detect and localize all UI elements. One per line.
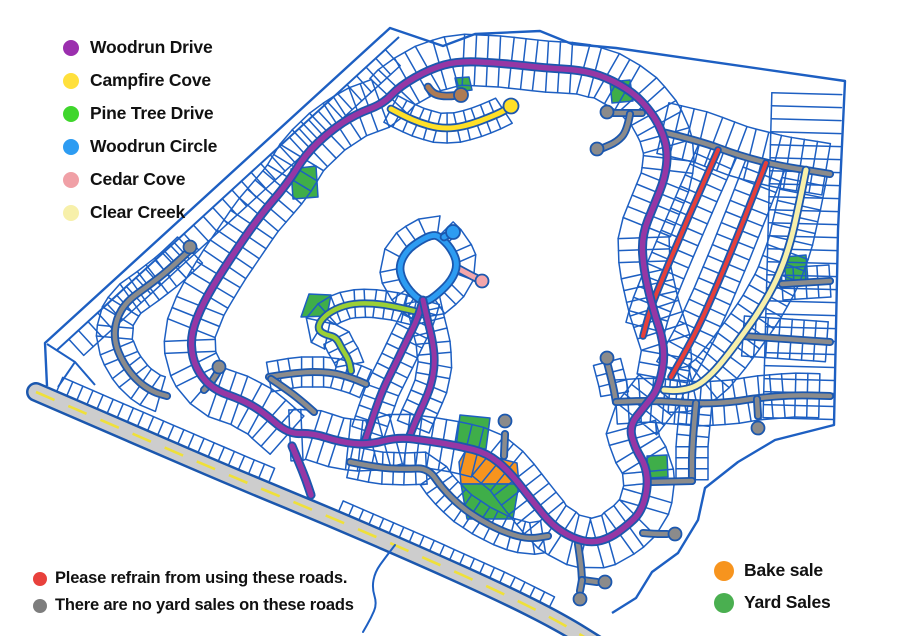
- culdesac-bulb: [504, 99, 519, 114]
- culdesac-bulb: [669, 528, 682, 541]
- road-color-dot: [63, 40, 79, 56]
- note-color-dot: [33, 572, 47, 586]
- lot-envelope-line: [692, 170, 785, 381]
- culdesac-bulb: [599, 576, 612, 589]
- road-color-dot: [63, 205, 79, 221]
- boundary-connector-road: [47, 344, 95, 385]
- culdesac-bulb: [499, 415, 512, 428]
- legend-label: Pine Tree Drive: [90, 103, 213, 124]
- road-notes-legend: Please refrain from using these roads.Th…: [33, 569, 354, 615]
- gray-east-row-2: [743, 336, 830, 342]
- gray-stub-bake: [504, 434, 505, 456]
- legend-label: Please refrain from using these roads.: [55, 569, 347, 588]
- legend-label: Clear Creek: [90, 202, 185, 223]
- lot-envelope-line: [593, 366, 600, 397]
- culdesac-bulb: [591, 143, 604, 156]
- creek-line: [363, 545, 395, 632]
- road-color-dot: [63, 172, 79, 188]
- sale-color-dot: [714, 593, 734, 613]
- sales-legend: Bake saleYard Sales: [714, 560, 831, 613]
- legend-label: Woodrun Circle: [90, 136, 217, 157]
- culdesac-bulb: [184, 241, 197, 254]
- gray-east-vertical-foot: [652, 481, 692, 482]
- legend-item-clear-creek: Clear Creek: [63, 202, 217, 223]
- legend-label: Woodrun Drive: [90, 37, 213, 58]
- legend-item-woodrun-circle: Woodrun Circle: [63, 136, 217, 157]
- neighborhood-map-image: Woodrun DriveCampfire CovePine Tree Driv…: [0, 0, 900, 636]
- legend-item-cedar-cove: Cedar Cove: [63, 169, 217, 190]
- road-color-dot: [63, 73, 79, 89]
- road-color-dot: [63, 106, 79, 122]
- legend-item-please-refrain-from-using-these-roads-: Please refrain from using these roads.: [33, 569, 354, 588]
- legend-item-there-are-no-yard-sales-on-these-roads: There are no yard sales on these roads: [33, 596, 354, 615]
- legend-item-woodrun-drive: Woodrun Drive: [63, 37, 217, 58]
- road-color-dot: [63, 139, 79, 155]
- culdesac-bulb: [213, 361, 226, 374]
- legend-item-campfire-cove: Campfire Cove: [63, 70, 217, 91]
- legend-label: Yard Sales: [744, 592, 831, 613]
- legend-label: Cedar Cove: [90, 169, 185, 190]
- culdesac-bulb: [601, 352, 614, 365]
- lot-envelope-line: [343, 501, 554, 597]
- culdesac-bulb: [752, 422, 765, 435]
- road-name-legend: Woodrun DriveCampfire CovePine Tree Driv…: [63, 37, 217, 223]
- legend-item-bake-sale: Bake sale: [714, 560, 831, 581]
- lot-envelope-line: [763, 93, 772, 418]
- sale-color-dot: [714, 561, 734, 581]
- legend-label: There are no yard sales on these roads: [55, 596, 354, 615]
- gray-bottom-t-left: [580, 580, 582, 591]
- gray-bottom-east-stub: [643, 533, 667, 534]
- culdesac-bulb: [454, 88, 468, 102]
- legend-label: Bake sale: [744, 560, 823, 581]
- gray-east-dot-stub: [757, 399, 758, 416]
- legend-item-yard-sales: Yard Sales: [714, 592, 831, 613]
- note-color-dot: [33, 599, 47, 613]
- culdesac-bulb: [476, 275, 489, 288]
- legend-label: Campfire Cove: [90, 70, 211, 91]
- culdesac-bulb: [446, 225, 460, 239]
- culdesac-bulb: [601, 106, 614, 119]
- gray-east-row-1: [782, 281, 830, 284]
- legend-item-pine-tree-drive: Pine Tree Drive: [63, 103, 217, 124]
- culdesac-bulb: [574, 593, 587, 606]
